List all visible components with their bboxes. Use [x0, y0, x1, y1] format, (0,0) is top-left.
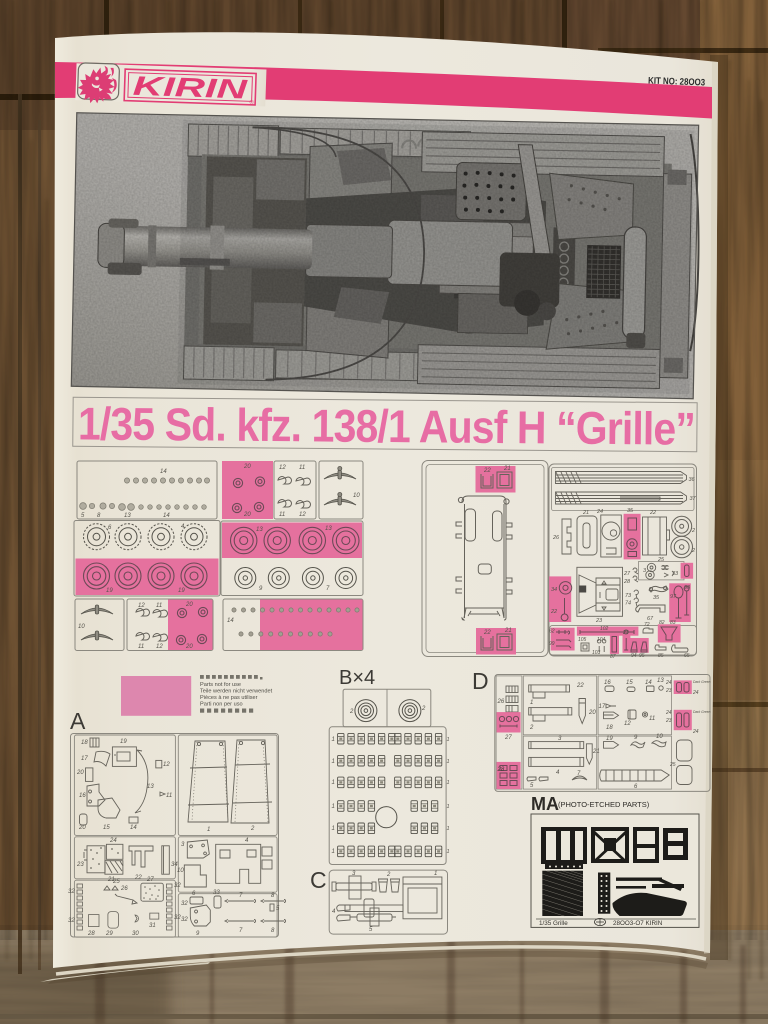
svg-text:23: 23: [76, 862, 84, 868]
svg-text:2: 2: [421, 706, 426, 712]
svg-text:28: 28: [87, 931, 95, 937]
svg-text:23: 23: [622, 630, 629, 636]
svg-text:83: 83: [670, 620, 676, 626]
svg-text:11: 11: [156, 603, 162, 609]
svg-text:1: 1: [447, 759, 450, 765]
svg-text:99: 99: [549, 641, 555, 647]
svg-text:1: 1: [447, 780, 450, 786]
svg-text:Dark Green: Dark Green: [693, 710, 711, 714]
svg-text:14: 14: [130, 825, 137, 831]
svg-text:32: 32: [68, 889, 75, 895]
svg-text:24: 24: [665, 710, 672, 716]
svg-text:33: 33: [213, 890, 220, 896]
svg-text:74: 74: [625, 601, 631, 607]
svg-text:97: 97: [670, 594, 677, 600]
svg-text:20: 20: [243, 512, 251, 518]
svg-text:20: 20: [185, 644, 193, 650]
svg-text:30: 30: [132, 931, 139, 937]
svg-text:1: 1: [332, 804, 335, 810]
svg-text:19: 19: [106, 588, 113, 594]
svg-text:82: 82: [659, 620, 665, 626]
svg-text:25: 25: [669, 762, 676, 768]
svg-text:12: 12: [624, 721, 631, 727]
svg-text:10: 10: [353, 493, 360, 499]
svg-text:11: 11: [649, 716, 655, 722]
svg-text:2: 2: [691, 548, 695, 554]
svg-text:20: 20: [185, 602, 193, 608]
svg-text:32: 32: [181, 901, 188, 907]
svg-text:24: 24: [692, 690, 699, 696]
svg-text:Pièces à ne pas utiliser: Pièces à ne pas utiliser: [200, 695, 258, 701]
svg-text:14: 14: [163, 513, 170, 519]
svg-text:21: 21: [504, 628, 512, 634]
svg-text:KIT NO: 28OO3: KIT NO: 28OO3: [648, 76, 705, 89]
svg-text:26: 26: [120, 886, 128, 892]
svg-text:1: 1: [332, 780, 335, 786]
svg-text:1: 1: [332, 737, 335, 743]
svg-text:11: 11: [166, 793, 172, 799]
svg-text:10: 10: [656, 734, 663, 740]
svg-text:90: 90: [684, 585, 691, 591]
svg-text:13: 13: [256, 527, 263, 533]
svg-text:2: 2: [349, 709, 354, 715]
svg-text:21: 21: [582, 510, 589, 516]
svg-text:1: 1: [434, 871, 437, 877]
svg-text:102: 102: [600, 626, 609, 632]
svg-text:21: 21: [503, 466, 511, 472]
svg-text:85: 85: [658, 653, 664, 659]
svg-text:10: 10: [78, 624, 85, 630]
svg-text:33: 33: [672, 571, 679, 577]
svg-text:31: 31: [149, 923, 156, 929]
svg-text:35: 35: [653, 595, 660, 601]
svg-text:Dark Green: Dark Green: [693, 680, 711, 684]
svg-text:72: 72: [644, 622, 650, 628]
svg-text:22: 22: [483, 630, 491, 636]
svg-text:17: 17: [81, 756, 88, 762]
svg-text:15: 15: [626, 680, 633, 686]
svg-text:24: 24: [596, 509, 603, 515]
svg-text:87: 87: [610, 654, 616, 660]
svg-text:19: 19: [178, 588, 185, 594]
svg-text:10: 10: [177, 868, 184, 874]
svg-text:13: 13: [657, 678, 664, 684]
svg-text:12: 12: [138, 603, 145, 609]
svg-text:2: 2: [691, 528, 695, 534]
svg-text:18: 18: [606, 725, 613, 731]
svg-text:12: 12: [156, 644, 163, 650]
svg-text:1: 1: [332, 849, 335, 855]
svg-text:A: A: [70, 708, 86, 734]
svg-text:73: 73: [625, 593, 632, 599]
svg-text:Parti non per uso: Parti non per uso: [200, 702, 243, 708]
svg-text:(PHOTO-ETCHED PARTS): (PHOTO-ETCHED PARTS): [558, 800, 650, 809]
svg-text:28: 28: [497, 767, 505, 773]
svg-text:C: C: [310, 867, 327, 893]
svg-text:12: 12: [299, 512, 306, 518]
svg-text:27: 27: [504, 735, 512, 741]
svg-text:14: 14: [160, 469, 167, 475]
svg-text:20: 20: [243, 464, 251, 470]
svg-text:19: 19: [120, 739, 127, 745]
svg-text:Teile werden nicht verwendet: Teile werden nicht verwendet: [200, 689, 273, 695]
svg-text:D: D: [472, 668, 489, 694]
svg-text:1: 1: [447, 737, 450, 743]
svg-text:13: 13: [124, 513, 131, 519]
svg-text:1: 1: [332, 826, 335, 832]
svg-text:MA: MA: [531, 794, 559, 814]
svg-text:2: 2: [529, 725, 534, 731]
svg-text:2: 2: [250, 826, 255, 832]
svg-text:21: 21: [592, 749, 600, 755]
svg-text:20: 20: [588, 710, 596, 716]
svg-text:62: 62: [549, 629, 555, 635]
svg-text:32: 32: [181, 917, 188, 923]
svg-text:Parts not for use: Parts not for use: [200, 682, 241, 688]
svg-text:11: 11: [279, 512, 285, 518]
svg-text:16: 16: [79, 793, 86, 799]
svg-text:1: 1: [207, 827, 210, 833]
svg-text:22: 22: [483, 468, 491, 474]
svg-text:105: 105: [578, 637, 587, 643]
svg-text:14: 14: [645, 680, 652, 686]
svg-text:18: 18: [81, 740, 88, 746]
svg-text:17: 17: [599, 704, 606, 710]
svg-text:24: 24: [692, 729, 699, 735]
svg-text:1: 1: [447, 826, 450, 832]
svg-text:16: 16: [604, 680, 611, 686]
svg-text:22: 22: [649, 510, 656, 516]
svg-text:14: 14: [227, 618, 234, 624]
svg-text:22: 22: [576, 683, 584, 689]
svg-text:1/35 Sd. kfz. 138/1 Ausf H “G: 1/35 Sd. kfz. 138/1 Ausf H “Grille”: [78, 397, 695, 454]
svg-text:13: 13: [325, 526, 332, 532]
svg-text:20: 20: [78, 825, 86, 831]
svg-text:19: 19: [606, 736, 613, 742]
svg-text:13: 13: [147, 784, 154, 790]
svg-text:1/35 Grille: 1/35 Grille: [539, 920, 568, 927]
svg-text:24: 24: [665, 680, 672, 686]
svg-text:28OO3-O7 KIRIN: 28OO3-O7 KIRIN: [613, 920, 663, 927]
svg-text:25: 25: [657, 557, 665, 563]
svg-text:37: 37: [690, 496, 697, 502]
svg-text:1: 1: [447, 804, 450, 810]
svg-text:28: 28: [623, 579, 631, 585]
svg-text:12: 12: [279, 465, 286, 471]
svg-text:23: 23: [595, 618, 603, 624]
svg-text:36: 36: [689, 477, 696, 483]
svg-text:KIRIN: KIRIN: [132, 71, 248, 105]
svg-text:29: 29: [105, 931, 113, 937]
svg-text:23: 23: [665, 688, 672, 694]
svg-text:95: 95: [639, 653, 645, 659]
svg-text:11: 11: [138, 644, 144, 650]
svg-text:22: 22: [134, 875, 142, 881]
svg-text:32: 32: [68, 918, 75, 924]
svg-text:1: 1: [447, 849, 450, 855]
svg-text:11: 11: [299, 465, 305, 471]
svg-text:23: 23: [665, 718, 672, 724]
svg-text:1: 1: [530, 700, 533, 706]
svg-text:26: 26: [497, 699, 505, 705]
svg-text:24: 24: [109, 838, 117, 844]
svg-text:2: 2: [386, 872, 391, 878]
svg-text:25: 25: [112, 879, 120, 885]
svg-text:32: 32: [174, 883, 181, 889]
svg-text:65: 65: [684, 653, 690, 659]
svg-text:12: 12: [163, 762, 170, 768]
svg-text:1: 1: [332, 759, 335, 765]
svg-text:15: 15: [103, 825, 110, 831]
svg-text:20: 20: [76, 770, 84, 776]
svg-text:34: 34: [551, 587, 557, 593]
svg-text:®: ®: [249, 99, 254, 106]
svg-text:22: 22: [550, 609, 557, 615]
svg-text:94: 94: [631, 653, 637, 659]
svg-text:27: 27: [146, 877, 154, 883]
svg-text:35: 35: [627, 508, 634, 514]
svg-text:26: 26: [552, 535, 560, 541]
svg-text:B×4: B×4: [339, 667, 375, 689]
svg-text:27: 27: [623, 571, 631, 577]
